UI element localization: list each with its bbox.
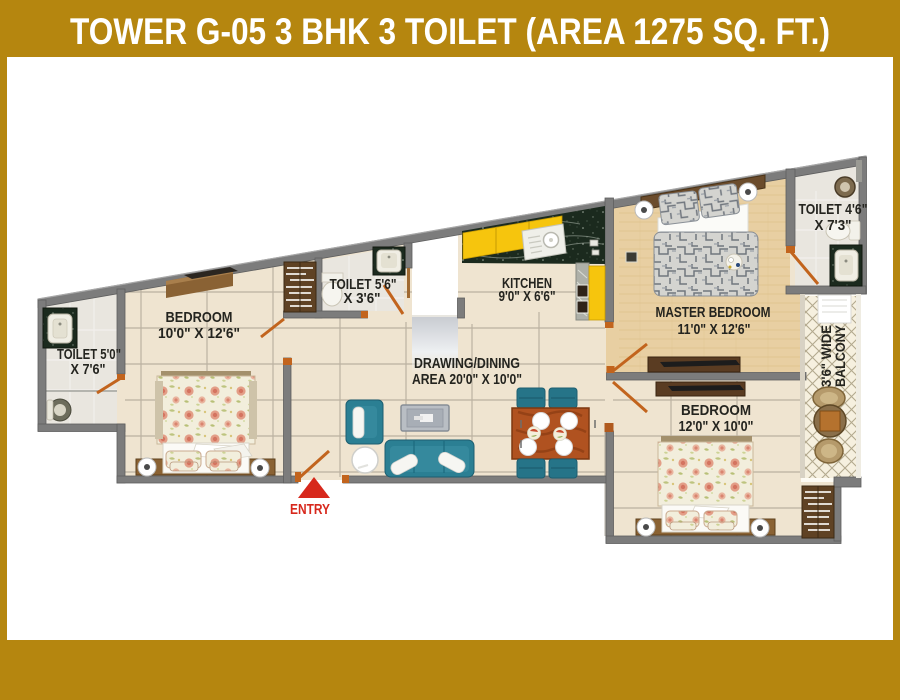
svg-text:AREA 20'0" X 10'0": AREA 20'0" X 10'0" xyxy=(412,371,522,388)
svg-text:9'0" X 6'6": 9'0" X 6'6" xyxy=(499,288,556,305)
svg-text:TOILET 4'6": TOILET 4'6" xyxy=(799,201,868,218)
svg-text:BEDROOM: BEDROOM xyxy=(166,309,233,326)
svg-text:TOWER G-05 3 BHK 3 TOILET (ARE: TOWER G-05 3 BHK 3 TOILET (AREA 1275 SQ.… xyxy=(70,11,830,52)
svg-text:12'0" X 10'0": 12'0" X 10'0" xyxy=(679,418,754,435)
svg-text:X 7'6": X 7'6" xyxy=(71,361,106,378)
svg-text:BALCONY: BALCONY xyxy=(832,324,848,387)
svg-text:X 3'6": X 3'6" xyxy=(344,290,381,307)
svg-text:MASTER BEDROOM: MASTER BEDROOM xyxy=(656,304,771,321)
svg-text:ENTRY: ENTRY xyxy=(290,501,330,518)
svg-text:10'0" X 12'6": 10'0" X 12'6" xyxy=(158,325,240,342)
svg-text:BEDROOM: BEDROOM xyxy=(681,402,751,419)
svg-text:X 7'3": X 7'3" xyxy=(815,217,852,234)
svg-text:DRAWING/DINING: DRAWING/DINING xyxy=(414,355,520,372)
svg-text:11'0" X 12'6": 11'0" X 12'6" xyxy=(678,321,751,338)
